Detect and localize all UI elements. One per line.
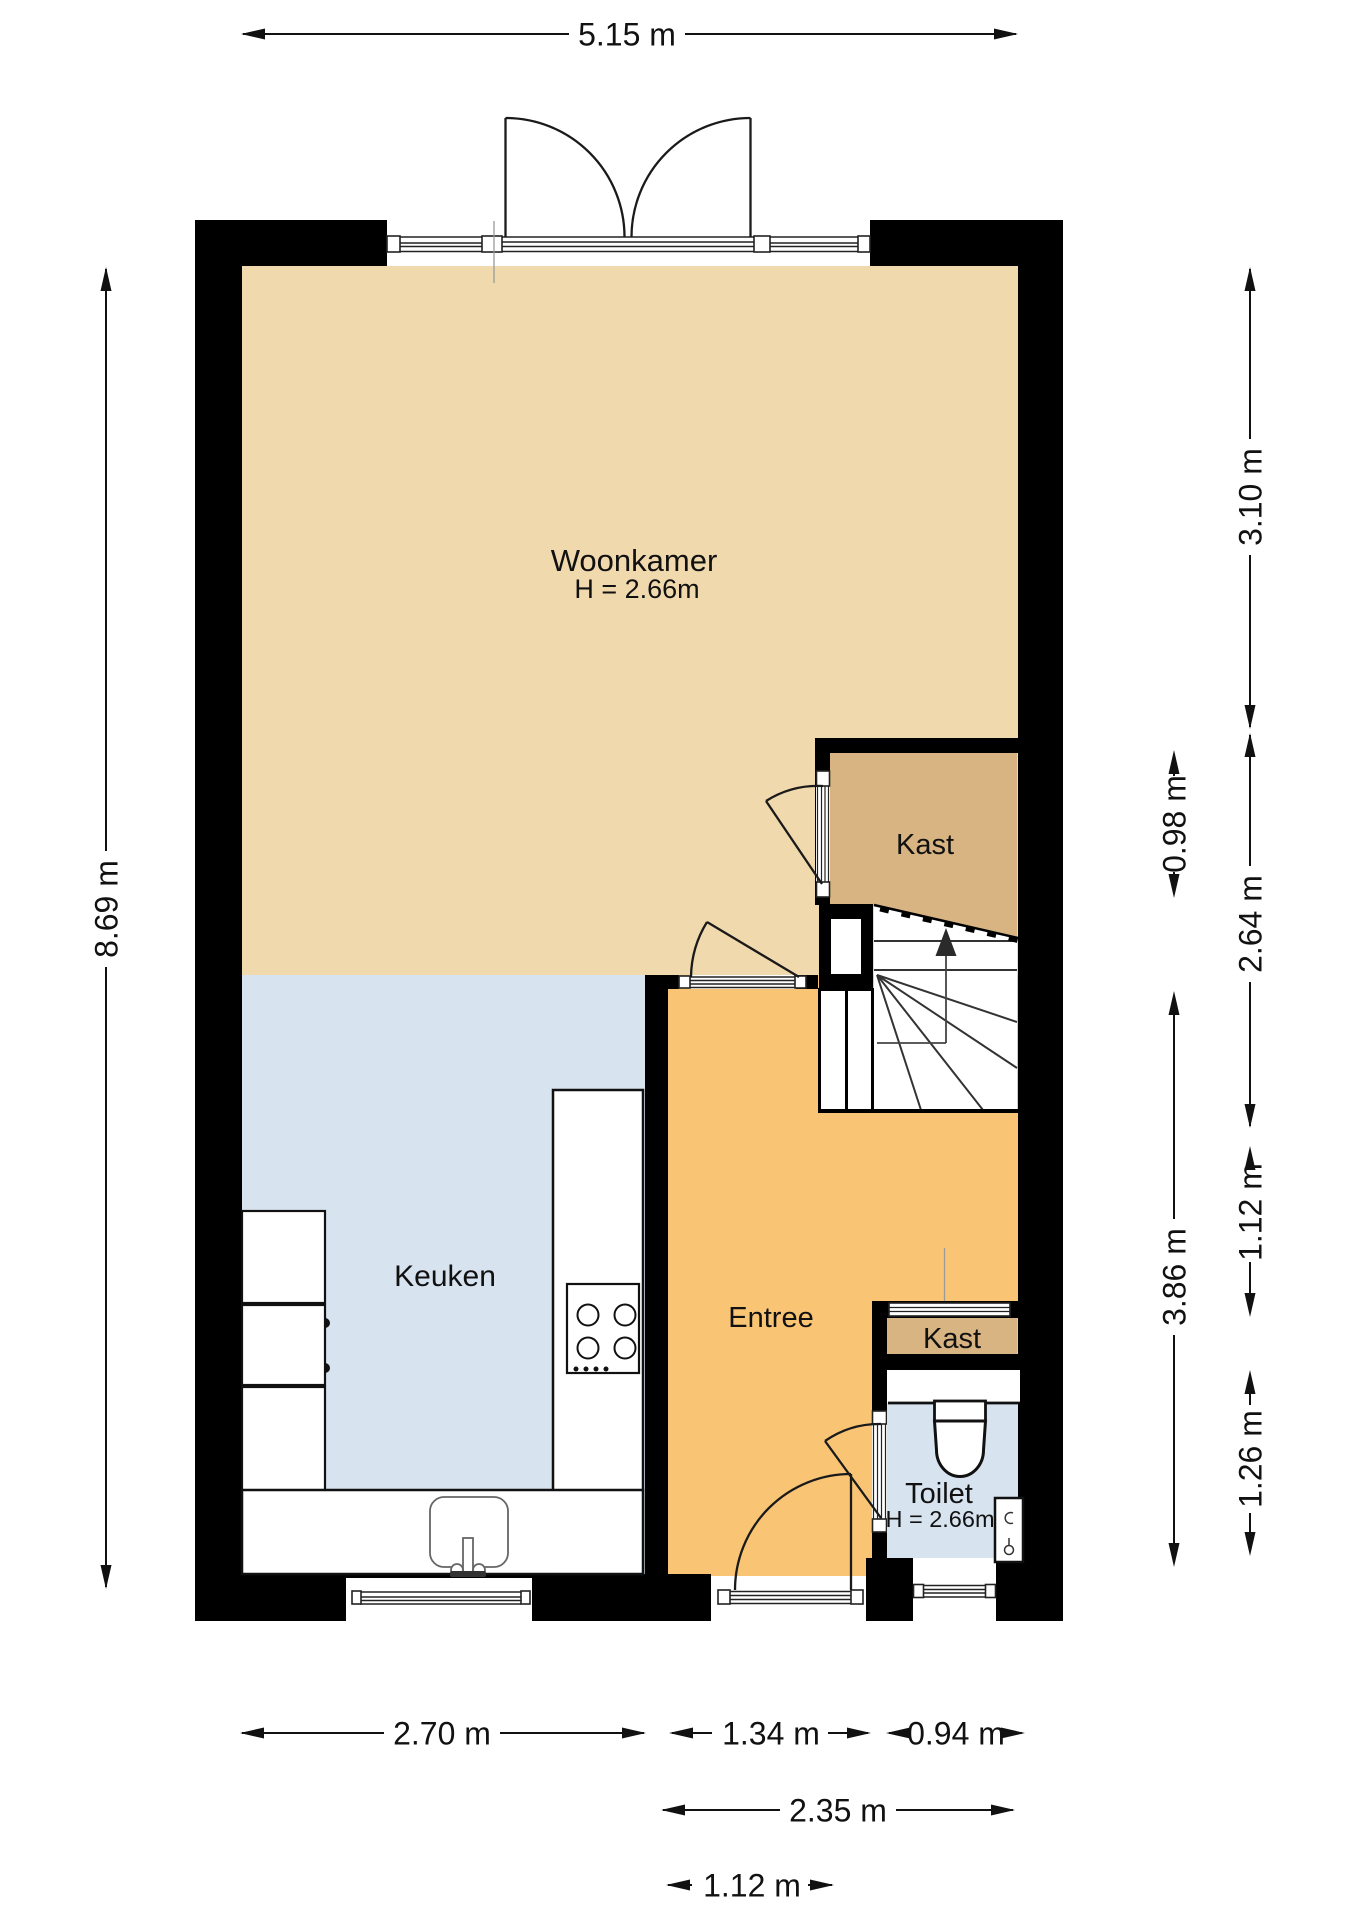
svg-text:Woonkamer: Woonkamer xyxy=(551,543,718,578)
svg-text:H = 2.66m: H = 2.66m xyxy=(885,1506,994,1532)
svg-text:2.70 m: 2.70 m xyxy=(393,1716,491,1752)
svg-text:H = 2.66m: H = 2.66m xyxy=(574,574,699,604)
svg-text:Keuken: Keuken xyxy=(394,1260,496,1293)
svg-text:3.10 m: 3.10 m xyxy=(1233,448,1269,546)
svg-text:Kast: Kast xyxy=(923,1323,981,1355)
svg-text:1.26 m: 1.26 m xyxy=(1233,1410,1269,1508)
svg-text:8.69 m: 8.69 m xyxy=(89,860,125,958)
svg-text:1.12 m: 1.12 m xyxy=(1233,1163,1269,1261)
svg-text:3.86 m: 3.86 m xyxy=(1157,1228,1193,1326)
svg-text:1.12 m: 1.12 m xyxy=(703,1868,801,1904)
svg-text:0.94 m: 0.94 m xyxy=(907,1716,1005,1752)
svg-text:5.15 m: 5.15 m xyxy=(578,17,676,53)
svg-text:Entree: Entree xyxy=(728,1302,813,1334)
svg-text:0.98 m: 0.98 m xyxy=(1157,775,1193,873)
svg-text:2.64 m: 2.64 m xyxy=(1233,875,1269,973)
svg-text:Kast: Kast xyxy=(896,829,954,861)
svg-text:1.34 m: 1.34 m xyxy=(722,1716,820,1752)
svg-text:2.35 m: 2.35 m xyxy=(789,1793,887,1829)
